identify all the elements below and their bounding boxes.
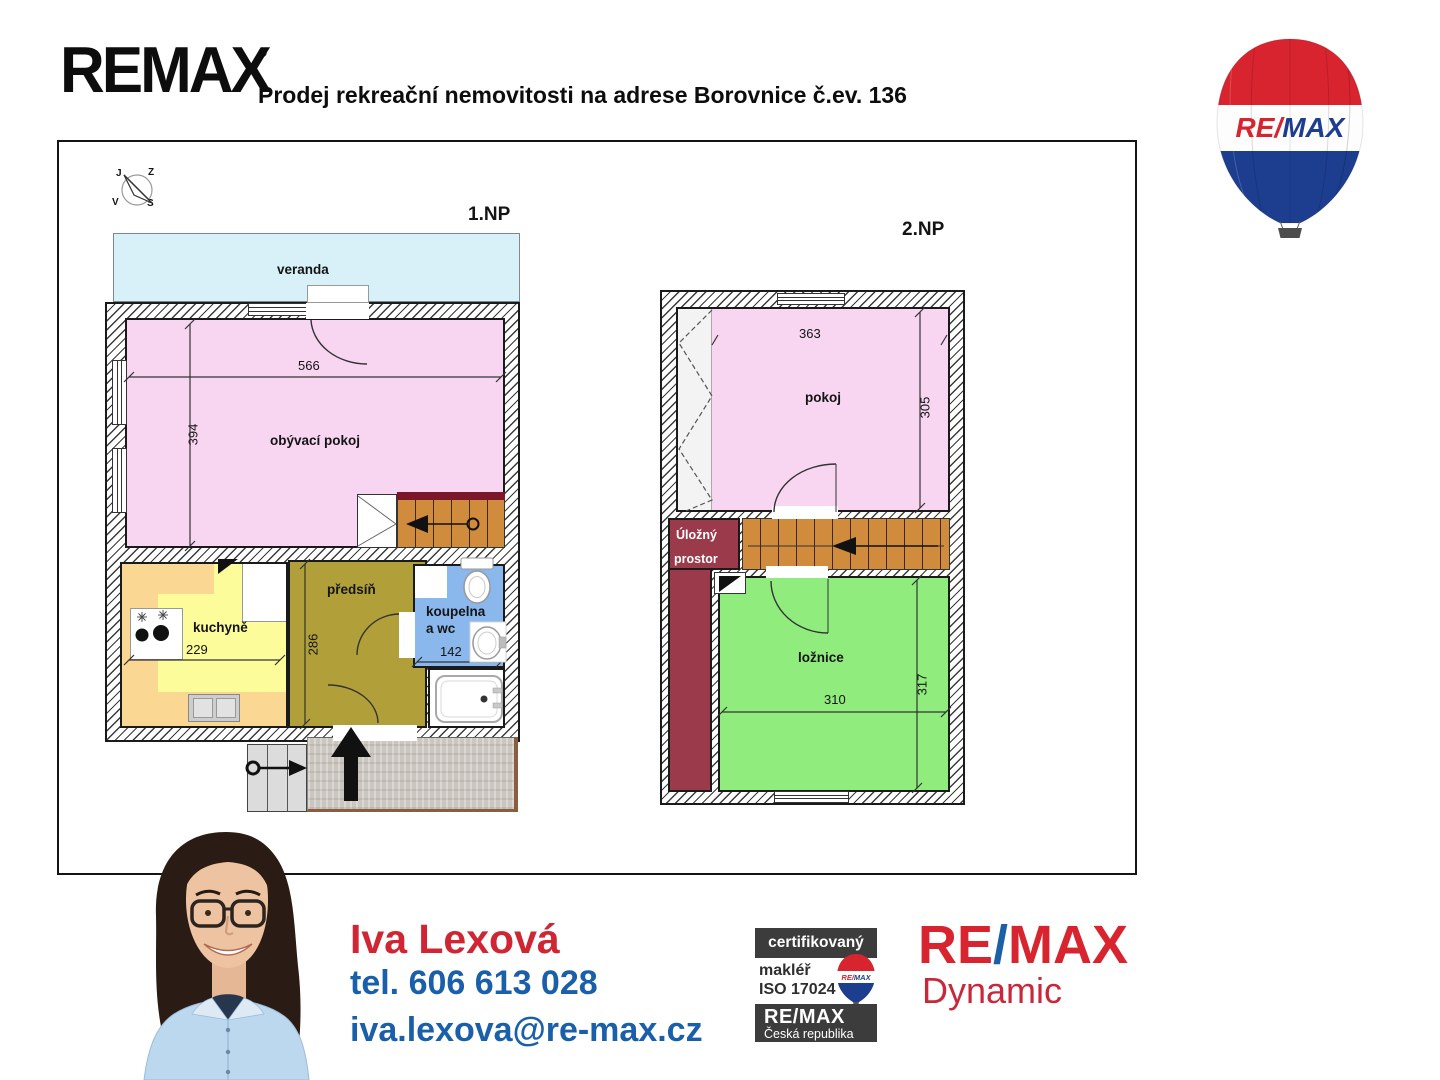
svg-text:RE/MAX: RE/MAX bbox=[1236, 112, 1347, 143]
kitchen-niche bbox=[242, 564, 286, 622]
dim-attic-height: 305 bbox=[918, 391, 933, 425]
compass-label-s: S bbox=[147, 198, 154, 209]
remax-balloon-logo: RE/MAX bbox=[1205, 33, 1375, 238]
dim-living-width: 566 bbox=[298, 358, 320, 373]
kitchen-stove bbox=[130, 608, 183, 660]
office-logo-re: RE bbox=[918, 915, 993, 975]
badge-balloon-icon: RE/MAX bbox=[833, 952, 879, 1006]
agent-name: Iva Lexová bbox=[350, 916, 560, 963]
office-logo-max: MAX bbox=[1008, 915, 1128, 975]
room-label-bedroom: ložnice bbox=[798, 650, 844, 665]
bath-alcove bbox=[428, 668, 505, 728]
compass-label-z: Z bbox=[148, 167, 154, 178]
entry-door-opening bbox=[333, 725, 417, 741]
svg-text:RE/MAX: RE/MAX bbox=[841, 973, 871, 982]
agent-email: iva.lexova@re-max.cz bbox=[350, 1011, 703, 1050]
door-opening bbox=[766, 566, 828, 578]
floor1-label: 1.NP bbox=[468, 204, 510, 226]
dim-bath-width: 142 bbox=[440, 644, 462, 659]
understair-nook bbox=[357, 494, 397, 548]
badge-broker: makléř bbox=[759, 962, 811, 980]
room-label-attic: pokoj bbox=[805, 390, 841, 405]
dim-kitchen-width: 229 bbox=[186, 642, 208, 657]
room-label-living: obývací pokoj bbox=[270, 433, 360, 448]
window bbox=[248, 303, 308, 316]
window bbox=[112, 360, 127, 425]
compass-label-v: V bbox=[112, 197, 119, 208]
bathroom-niche bbox=[415, 566, 447, 598]
room-label-bathroom-1: koupelna bbox=[426, 604, 485, 619]
badge-remax-cz: RE/MAX Česká republika bbox=[755, 1004, 877, 1042]
room-label-kitchen: kuchyně bbox=[193, 620, 248, 635]
dim-bedroom-height: 317 bbox=[915, 668, 930, 702]
window bbox=[112, 448, 127, 513]
office-name: Dynamic bbox=[922, 970, 1062, 1012]
kitchen-sink-bowl bbox=[216, 698, 236, 718]
compass-label-j: J bbox=[116, 168, 122, 179]
office-logo: RE/MAX bbox=[918, 914, 1128, 976]
agent-phone: tel. 606 613 028 bbox=[350, 964, 598, 1003]
entry-steps bbox=[247, 744, 307, 812]
badge-remax-country: Česká republika bbox=[764, 1027, 877, 1041]
dim-living-height: 394 bbox=[186, 418, 201, 452]
door-opening bbox=[399, 612, 415, 658]
office-logo-slash: / bbox=[993, 915, 1008, 975]
dim-attic-width: 363 bbox=[799, 326, 821, 341]
stairs-floor2 bbox=[742, 518, 950, 570]
attic-slope-zone bbox=[678, 309, 712, 510]
veranda-door-leaf bbox=[307, 285, 369, 303]
door-opening bbox=[306, 303, 369, 319]
window bbox=[774, 791, 849, 803]
door-opening bbox=[772, 506, 838, 519]
room-label-hall: předsíň bbox=[327, 582, 376, 597]
page-title: Prodej rekreační nemovitosti na adrese B… bbox=[258, 82, 907, 109]
room-storage-strip bbox=[668, 568, 712, 792]
room-label-storage-1: Úložný bbox=[676, 528, 717, 542]
kitchen-sink-bowl bbox=[193, 698, 213, 718]
dim-bedroom-width: 310 bbox=[824, 692, 846, 707]
kitchen-counter-top bbox=[122, 564, 214, 594]
badge-iso: ISO 17024 bbox=[759, 981, 836, 999]
entry-paving bbox=[307, 737, 518, 812]
room-label-bathroom-2: a wc bbox=[426, 621, 455, 636]
registered-mark: ® bbox=[258, 46, 267, 60]
room-label-veranda: veranda bbox=[277, 262, 329, 277]
remax-wordmark: REMAX bbox=[60, 39, 269, 103]
stairs-floor1 bbox=[397, 492, 505, 548]
stairs-floor1-landing-edge bbox=[397, 492, 505, 500]
agent-photo bbox=[116, 816, 336, 1080]
dim-hall-height: 286 bbox=[306, 628, 321, 662]
badge-remax-brand: RE/MAX bbox=[764, 1006, 877, 1029]
bedroom-step-box bbox=[714, 572, 746, 594]
window bbox=[777, 293, 845, 305]
floor2-label: 2.NP bbox=[902, 219, 944, 241]
room-label-storage-2: prostor bbox=[674, 552, 718, 566]
flyer-canvas: REMAX ® Prodej rekreační nemovitosti na … bbox=[0, 0, 1440, 1080]
